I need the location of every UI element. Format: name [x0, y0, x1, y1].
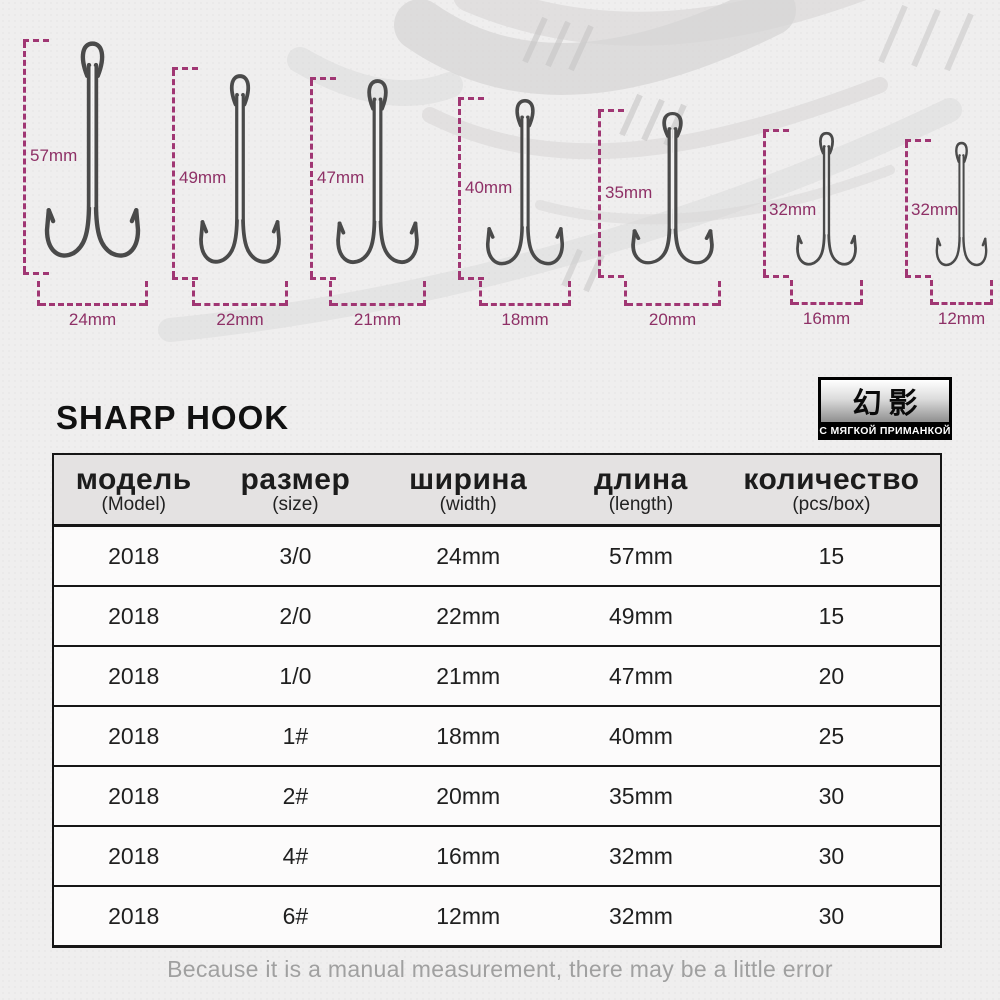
cell-length: 40mm — [559, 723, 723, 750]
width-bracket — [332, 281, 423, 306]
cell-model: 2018 — [54, 543, 213, 570]
cell-length: 49mm — [559, 603, 723, 630]
width-bracket — [627, 281, 718, 306]
col-header-quantity: количество (pcs/box) — [723, 465, 940, 515]
width-label: 21mm — [332, 310, 423, 330]
measurement-disclaimer: Because it is a manual measurement, ther… — [0, 956, 1000, 983]
length-bracket — [23, 42, 26, 272]
width-label: 18mm — [482, 310, 568, 330]
width-label: 20mm — [627, 310, 718, 330]
cell-quantity: 30 — [723, 903, 940, 930]
col-header-length: длина (length) — [559, 465, 723, 515]
cell-quantity: 15 — [723, 603, 940, 630]
table-row: 2018 1# 18mm 40mm 25 — [54, 707, 940, 767]
cell-model: 2018 — [54, 783, 213, 810]
col-header-model: модель (Model) — [54, 465, 213, 515]
width-bracket — [793, 280, 860, 305]
width-label: 22mm — [195, 310, 285, 330]
cell-width: 22mm — [377, 603, 559, 630]
col-header-size: размер (size) — [213, 465, 377, 515]
length-label: 40mm — [465, 178, 512, 198]
cell-width: 16mm — [377, 843, 559, 870]
length-bracket — [598, 112, 601, 275]
width-label: 24mm — [40, 310, 145, 330]
length-label: 32mm — [769, 200, 816, 220]
page-title: SHARP HOOK — [56, 399, 289, 437]
cell-model: 2018 — [54, 663, 213, 690]
table-header-row: модель (Model) размер (size) ширина (wid… — [54, 455, 940, 527]
table-row: 2018 3/0 24mm 57mm 15 — [54, 527, 940, 587]
width-bracket — [482, 281, 568, 306]
length-bracket — [310, 80, 313, 277]
width-label: 16mm — [793, 309, 860, 329]
length-label: 35mm — [605, 183, 652, 203]
table-row: 2018 1/0 21mm 47mm 20 — [54, 647, 940, 707]
cell-size: 2/0 — [213, 603, 377, 630]
table-row: 2018 2/0 22mm 49mm 15 — [54, 587, 940, 647]
cell-size: 6# — [213, 903, 377, 930]
length-bracket — [763, 132, 766, 275]
length-label: 47mm — [317, 168, 364, 188]
cell-quantity: 30 — [723, 783, 940, 810]
width-label: 12mm — [933, 309, 990, 329]
cell-width: 12mm — [377, 903, 559, 930]
cell-width: 21mm — [377, 663, 559, 690]
cell-size: 4# — [213, 843, 377, 870]
length-label: 49mm — [179, 168, 226, 188]
length-label: 57mm — [30, 146, 77, 166]
table-row: 2018 6# 12mm 32mm 30 — [54, 887, 940, 945]
brand-badge: 幻影 С МЯГКОЙ ПРИМАНКОЙ — [818, 377, 952, 440]
width-bracket — [40, 281, 145, 306]
cell-size: 2# — [213, 783, 377, 810]
cell-quantity: 25 — [723, 723, 940, 750]
cell-length: 32mm — [559, 843, 723, 870]
cell-size: 3/0 — [213, 543, 377, 570]
spec-table: модель (Model) размер (size) ширина (wid… — [52, 453, 942, 948]
cell-width: 20mm — [377, 783, 559, 810]
cell-length: 57mm — [559, 543, 723, 570]
width-bracket — [933, 280, 990, 305]
length-bracket — [905, 142, 908, 275]
length-bracket — [458, 100, 461, 277]
length-label: 32mm — [911, 200, 958, 220]
brand-logo-text: 幻影 — [821, 380, 949, 422]
cell-width: 24mm — [377, 543, 559, 570]
table-row: 2018 2# 20mm 35mm 30 — [54, 767, 940, 827]
cell-length: 47mm — [559, 663, 723, 690]
cell-quantity: 15 — [723, 543, 940, 570]
cell-size: 1# — [213, 723, 377, 750]
cell-length: 35mm — [559, 783, 723, 810]
width-bracket — [195, 281, 285, 306]
brand-subtitle: С МЯГКОЙ ПРИМАНКОЙ — [821, 422, 949, 440]
col-header-width: ширина (width) — [377, 465, 559, 515]
cell-model: 2018 — [54, 903, 213, 930]
cell-quantity: 20 — [723, 663, 940, 690]
cell-model: 2018 — [54, 843, 213, 870]
cell-size: 1/0 — [213, 663, 377, 690]
cell-quantity: 30 — [723, 843, 940, 870]
length-bracket — [172, 70, 175, 277]
cell-width: 18mm — [377, 723, 559, 750]
table-row: 2018 4# 16mm 32mm 30 — [54, 827, 940, 887]
cell-length: 32mm — [559, 903, 723, 930]
cell-model: 2018 — [54, 723, 213, 750]
cell-model: 2018 — [54, 603, 213, 630]
